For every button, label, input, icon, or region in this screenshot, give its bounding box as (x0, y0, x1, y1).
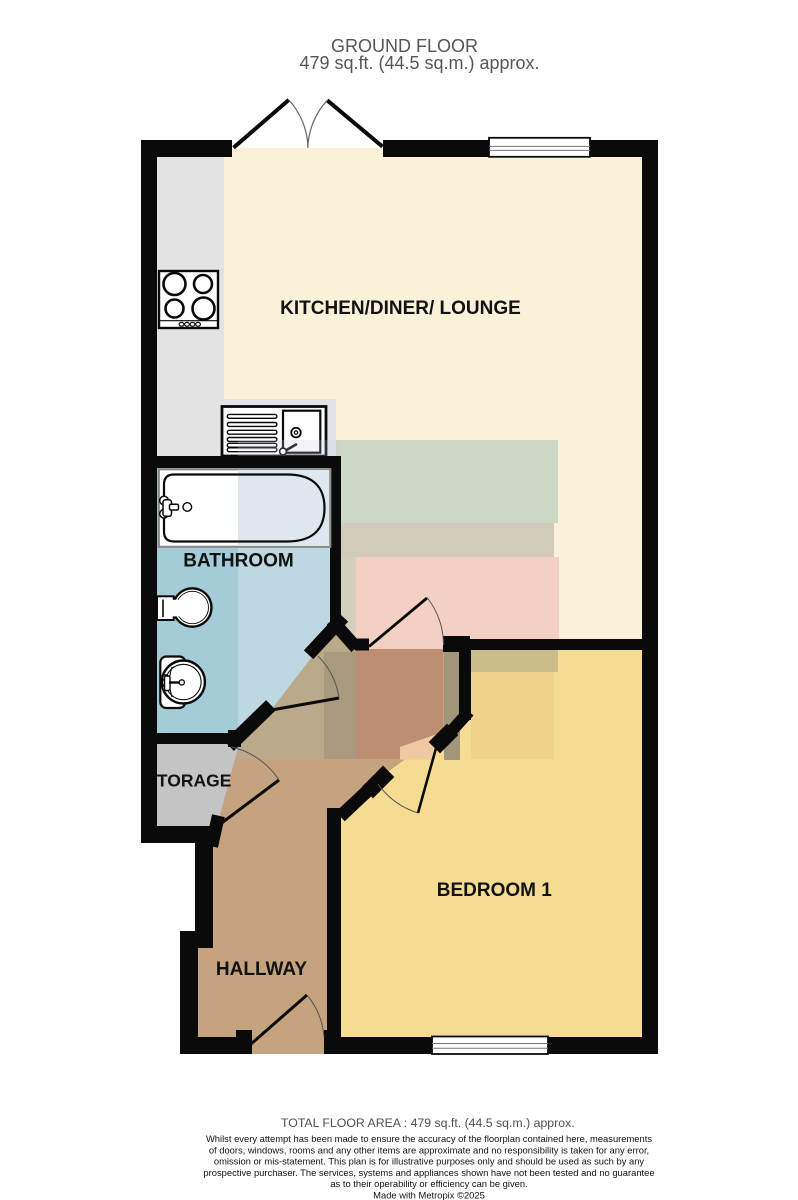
svg-text:as to their operability or eff: as to their operability or efficiency ca… (330, 1178, 527, 1189)
svg-text:Whilst every attempt has been: Whilst every attempt has been made to en… (206, 1133, 652, 1144)
svg-text:Made with Metropix ©2025: Made with Metropix ©2025 (373, 1190, 485, 1200)
svg-text:479 sq.ft. (44.5 sq.m.) approx: 479 sq.ft. (44.5 sq.m.) approx. (299, 53, 539, 73)
svg-text:omission or mis-statement. Thi: omission or mis-statement. This plan is … (214, 1156, 645, 1167)
svg-text:BATHROOM: BATHROOM (183, 551, 293, 572)
svg-text:TOTAL FLOOR AREA : 479 sq.ft.: TOTAL FLOOR AREA : 479 sq.ft. (44.5 sq.m… (281, 1116, 575, 1130)
svg-text:STORAGE: STORAGE (145, 770, 231, 790)
svg-text:BEDROOM 1: BEDROOM 1 (437, 880, 553, 901)
svg-text:prospective purchaser. The ser: prospective purchaser. The services, sys… (203, 1167, 654, 1178)
svg-text:KITCHEN/DINER/ LOUNGE: KITCHEN/DINER/ LOUNGE (280, 298, 521, 319)
svg-text:HALLWAY: HALLWAY (216, 959, 307, 980)
svg-text:of doors, windows, rooms and a: of doors, windows, rooms and any other i… (209, 1144, 649, 1155)
